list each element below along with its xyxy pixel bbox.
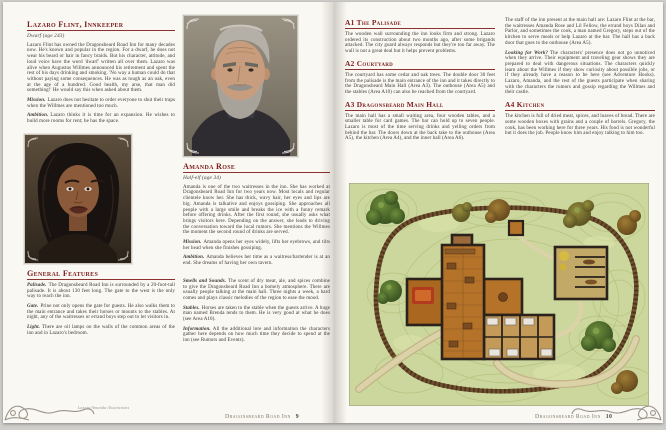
left-page-number: 9 (296, 414, 299, 420)
ambition-label: Ambition. (183, 255, 204, 260)
left-page-column-2: Amanda Rose Half-elf (age 34) Amanda is … (183, 15, 330, 348)
left-page-footer: Dragonsbeard Road Inn9 (225, 414, 299, 420)
a3-heading: A3 Dragonsbeard Main Hall (345, 100, 495, 111)
amanda-heading: Amanda Rose (183, 162, 330, 173)
lazaro-mission-paragraph: Mission.Lazaro does not hesitate to orde… (27, 98, 175, 109)
column-spacer (183, 271, 330, 279)
lazaro-subtitle: Dwarf (age 243) (27, 34, 175, 40)
lazaro-heading: Lazaro Flint, Innkeeper (27, 20, 175, 31)
corner-flourish-icon (3, 396, 95, 422)
a1-heading: A1 The Palisade (345, 18, 495, 29)
amanda-portrait-image (24, 134, 132, 264)
general-features-heading: General Features (27, 269, 175, 280)
book-spread-view: { "colors":{ "page_background":"#faf8f2"… (0, 0, 666, 430)
staff-paragraph: The staff of the inn present at the main… (505, 18, 655, 47)
a1-paragraph: The wooden wall surrounding the inn look… (345, 32, 495, 55)
amanda-ambition-paragraph: Ambition.Amanda believes her time as a w… (183, 255, 330, 266)
feature-light-paragraph: Light.There are oil lamps on the walls o… (27, 325, 175, 336)
amanda-subtitle: Half-elf (age 34) (183, 176, 330, 182)
mission-label: Mission. (183, 240, 201, 245)
smells-sounds-label: Smells and Sounds. (183, 279, 226, 284)
lazaro-intro-paragraph: Lazaro Flint has owned the Dragonsbeard … (27, 43, 175, 94)
mission-label: Mission. (27, 98, 45, 103)
a4-paragraph: The kitchen is full of dried meat, spice… (505, 114, 655, 137)
lazaro-ambition-paragraph: Ambition.Lazaro thinks it is time for an… (27, 113, 175, 124)
left-footer-title: Dragonsbeard Road Inn (225, 414, 291, 420)
amanda-mission-paragraph: Mission.Amanda opens her eyes widely, li… (183, 240, 330, 251)
light-label: Light. (27, 325, 40, 330)
two-page-spread: Lazaro Flint, Innkeeper Dwarf (age 243) … (3, 2, 663, 423)
battle-map-image (349, 183, 649, 406)
ambition-text: Lazaro thinks it is time for an expansio… (27, 113, 175, 124)
a4-heading: A4 Kitchen (505, 100, 655, 111)
ambition-label: Ambition. (27, 113, 48, 118)
right-page-column-2: The staff of the inn present at the main… (505, 18, 655, 141)
stables-label: Stables. (183, 306, 200, 311)
looking-for-work-label: Looking for Work? (505, 51, 548, 56)
smells-sounds-paragraph: Smells and Sounds.The scent of dry meat,… (183, 279, 330, 302)
palisade-text: The Dragonsbeard Road Inn is surrounded … (27, 283, 175, 299)
mission-text: Amanda opens her eyes widely, lifts her … (183, 240, 330, 251)
stables-paragraph: Stables.Horses are taken to the stable w… (183, 306, 330, 323)
gate-text: Prine not only opens the gate for guests… (27, 304, 175, 320)
information-paragraph: Information.All the additional lore and … (183, 327, 330, 344)
left-page: Lazaro Flint, Innkeeper Dwarf (age 243) … (3, 2, 333, 423)
right-page-column-1: A1 The Palisade The wooden wall surround… (345, 18, 495, 146)
light-text: There are oil lamps on the walls of the … (27, 325, 175, 336)
corner-flourish-icon (571, 396, 663, 422)
left-page-column-1: Lazaro Flint, Innkeeper Dwarf (age 243) … (27, 20, 175, 340)
feature-palisade-paragraph: Palisade.The Dragonsbeard Road Inn is su… (27, 283, 175, 300)
looking-for-work-text: The characters' presence does not go unn… (505, 51, 655, 96)
stables-text: Horses are taken to the stable when the … (183, 306, 330, 322)
a2-heading: A2 Courtyard (345, 59, 495, 70)
palisade-label: Palisade. (27, 283, 47, 288)
lazaro-portrait-image (183, 15, 298, 157)
information-label: Information. (183, 327, 211, 332)
ambition-text: Amanda believes her time as a waitress/b… (183, 255, 330, 266)
battle-map (349, 183, 649, 406)
feature-gate-paragraph: Gate.Prine not only opens the gate for g… (27, 304, 175, 321)
looking-for-work-paragraph: Looking for Work?The characters' presenc… (505, 51, 655, 97)
gate-label: Gate. (27, 304, 38, 309)
a3-paragraph: The main hall has a small waiting area, … (345, 114, 495, 143)
mission-text: Lazaro does not hesitate to order everyo… (27, 98, 175, 109)
a2-paragraph: The courtyard has some cedar and oak tre… (345, 73, 495, 96)
amanda-intro-paragraph: Amanda is one of the two waitresses in t… (183, 185, 330, 236)
